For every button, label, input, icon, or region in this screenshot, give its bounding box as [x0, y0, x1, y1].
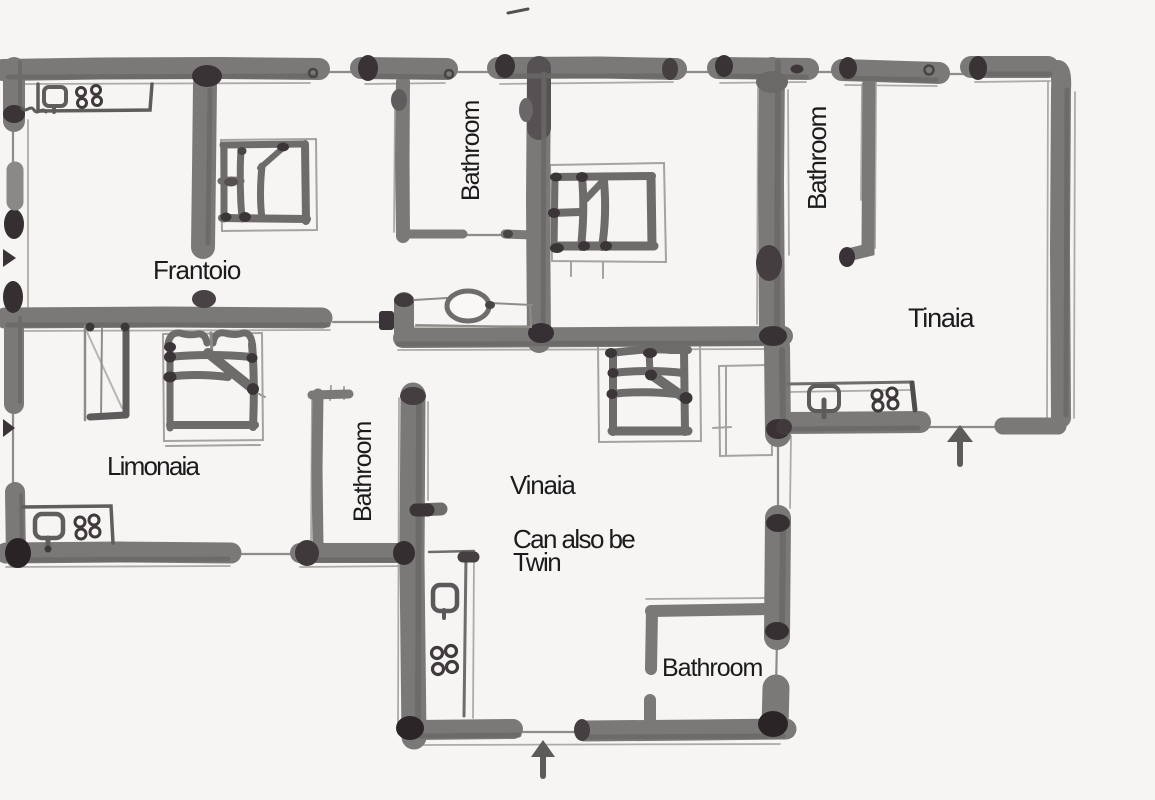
svg-text:Twin: Twin	[513, 547, 560, 577]
svg-text:Vinaia: Vinaia	[510, 470, 576, 500]
svg-text:Frantoio: Frantoio	[153, 255, 241, 285]
svg-text:Limonaia: Limonaia	[107, 451, 200, 481]
svg-text:Bathroom: Bathroom	[662, 654, 763, 682]
svg-text:Bathroom: Bathroom	[457, 100, 485, 201]
svg-text:Tinaia: Tinaia	[908, 303, 976, 333]
svg-text:Bathroom: Bathroom	[802, 107, 832, 210]
svg-text:Bathroom: Bathroom	[349, 421, 377, 522]
